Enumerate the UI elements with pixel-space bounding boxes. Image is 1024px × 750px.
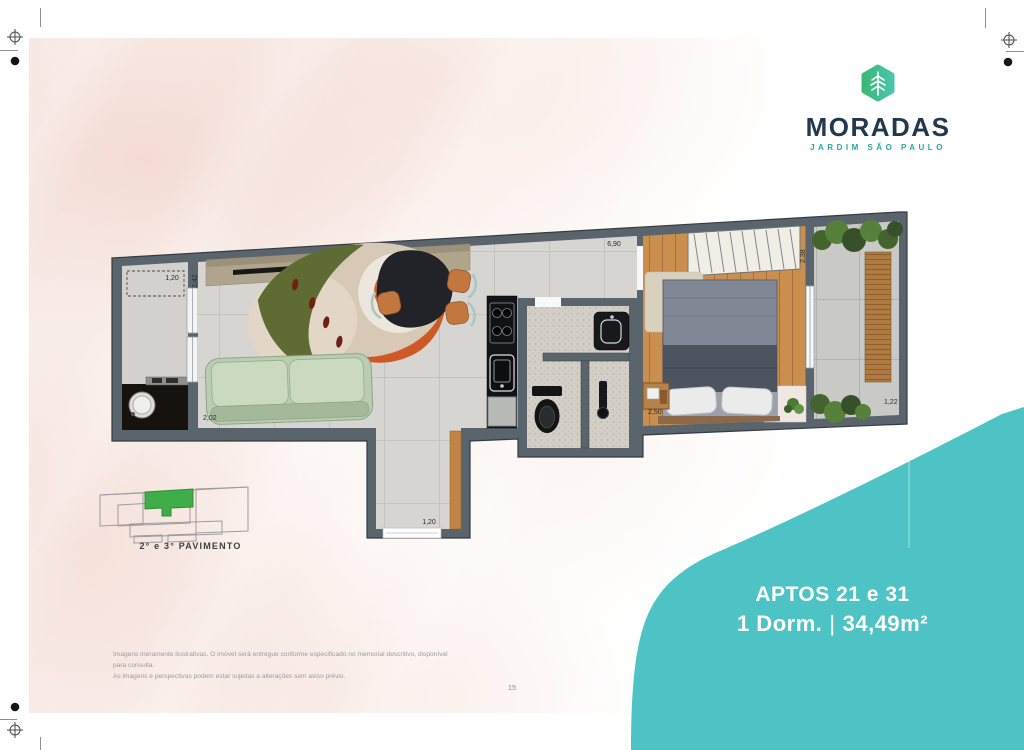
service-area xyxy=(122,262,198,430)
kitchen-sink xyxy=(490,355,514,391)
crop-mark-top-left xyxy=(0,8,41,65)
dim-service-depth: 2,42 xyxy=(192,274,199,288)
brand-subtitle: JARDIM SÃO PAULO xyxy=(798,144,958,152)
balcony-window xyxy=(806,286,814,368)
disclaimer-line1: Imagens meramente ilustrativas. O imóvel… xyxy=(113,650,453,672)
keyplan-drawing xyxy=(100,487,248,543)
shoe-rack xyxy=(450,431,461,529)
dim-bedroom-width: 2,50 xyxy=(648,409,662,416)
unit-specs: 1 Dorm.|34,49m² xyxy=(660,611,1005,637)
pillow-right xyxy=(721,387,772,416)
brand-name: MORADAS xyxy=(798,114,958,140)
bed xyxy=(658,280,780,424)
wardrobe xyxy=(688,226,800,276)
keyplan-unit-highlight xyxy=(145,489,193,516)
leaf-icon xyxy=(858,64,898,106)
brochure-page: 1,20 2,42 2,02 6,90 2,38 2,50 1,22 1,20 xyxy=(0,0,1024,750)
unit-separator: | xyxy=(822,611,842,636)
brand-logo: MORADAS JARDIM SÃO PAULO xyxy=(798,64,958,152)
page-number: 15 xyxy=(0,683,1024,692)
dim-living-width: 2,02 xyxy=(203,415,217,422)
shower-column xyxy=(598,381,609,419)
cooktop xyxy=(490,303,514,343)
keyplan-caption: 2° e 3° PAVIMENTO xyxy=(108,541,273,551)
unit-badge: APTOS 21 e 31 1 Dorm.|34,49m² xyxy=(660,583,1005,637)
crop-mark-bottom-left xyxy=(0,703,41,750)
balcony xyxy=(806,220,903,423)
laundry-corner xyxy=(122,377,188,430)
dim-service-width: 1,20 xyxy=(165,275,179,282)
fridge xyxy=(488,397,516,426)
floorplan: 1,20 2,42 2,02 6,90 2,38 2,50 1,22 1,20 xyxy=(112,212,907,538)
dim-wardrobe-span: 2,38 xyxy=(800,249,807,263)
dim-balcony-width: 1,22 xyxy=(884,399,898,406)
deck-bench xyxy=(865,252,891,382)
bath-divider-wall xyxy=(543,353,629,361)
bathroom-door xyxy=(535,297,561,307)
crop-mark-top-right xyxy=(986,8,1024,66)
nightstand xyxy=(643,383,669,409)
bathroom xyxy=(527,297,629,448)
pillow-left xyxy=(665,386,717,415)
info-wave-shape xyxy=(631,407,1024,750)
entry-door xyxy=(383,528,441,538)
bedroom xyxy=(637,226,806,426)
kitchen xyxy=(487,296,517,428)
dim-entry-width: 1,20 xyxy=(422,519,436,526)
unit-area: 34,49m² xyxy=(843,611,928,636)
sofa xyxy=(205,353,373,425)
unit-dorm: 1 Dorm. xyxy=(737,611,822,636)
shower-wall xyxy=(581,361,589,448)
bath-sink xyxy=(594,312,629,350)
dim-top-span: 6,90 xyxy=(607,241,621,248)
disclaimer-line2: As imagens e perspectivas podem estar su… xyxy=(113,672,453,683)
bedroom-door xyxy=(637,246,643,290)
unit-title: APTOS 21 e 31 xyxy=(660,583,1005,607)
disclaimer: Imagens meramente ilustrativas. O imóvel… xyxy=(113,650,453,683)
